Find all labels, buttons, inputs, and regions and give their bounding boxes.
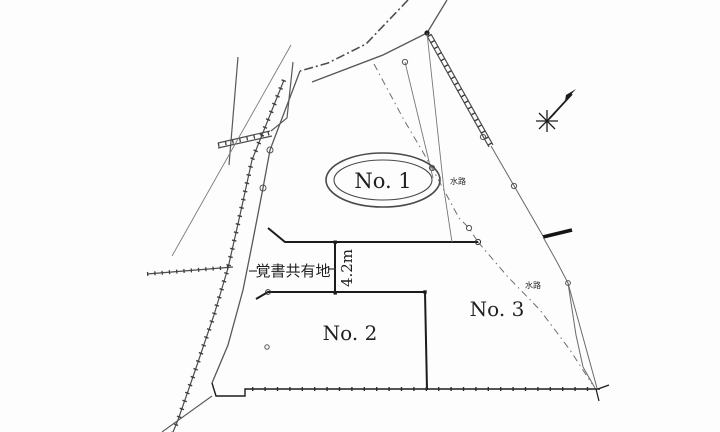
plot-no3-label: No. 3 <box>470 297 525 321</box>
waterway-label-upper: 水路 <box>450 176 466 186</box>
boundary-no2-north <box>256 292 425 299</box>
north-arrow-icon <box>536 89 576 132</box>
upper-left-line-2 <box>271 62 293 131</box>
small-marker-circle <box>265 345 269 349</box>
road-bottom-inner-line <box>162 396 212 432</box>
shared-land-annotation: 覚書共有地 4.2m <box>249 249 356 287</box>
ne-boundary-line-a <box>427 36 489 147</box>
northeast-boundary <box>427 34 572 237</box>
upper-road <box>300 0 447 82</box>
upper-left-line-1 <box>229 57 238 165</box>
main-road <box>162 71 300 432</box>
north-arrow-shaft <box>549 94 572 119</box>
east-boundary-no3 <box>543 237 597 388</box>
waterway-label-lower: 水路 <box>525 280 541 290</box>
plot-no1-label: No. 1 <box>354 169 411 193</box>
parcel-boundaries <box>212 228 609 401</box>
upper-road-north-edge <box>300 0 408 71</box>
strip-width-label: 4.2m <box>338 249 356 287</box>
boundary-southeast-tail <box>596 389 599 401</box>
boundary-node <box>334 291 337 294</box>
survey-line-short <box>405 62 433 178</box>
east-boundary-outer <box>543 237 597 388</box>
east-corner-bold-mark <box>543 230 572 237</box>
boundary-south <box>212 383 600 396</box>
boundary-no2-no3-divider <box>425 292 427 390</box>
boundary-node <box>334 241 337 244</box>
waterway-line <box>374 64 592 384</box>
ne-boundary-line-b <box>431 34 493 145</box>
upper-left-structures <box>147 45 293 274</box>
upper-road-south-edge <box>312 0 447 82</box>
survey-lines <box>402 33 452 242</box>
stub-road-hatching <box>218 133 271 145</box>
main-road-left-edge-hatching <box>173 80 284 432</box>
survey-map-canvas: No. 1 No. 2 No. 3 覚書共有地 4.2m 水路 水路 <box>0 0 720 432</box>
plot-no2-label: No. 2 <box>323 321 378 345</box>
ne-boundary-hatching <box>429 35 491 146</box>
waterway-marker-circle <box>466 225 471 230</box>
ne-boundary-thin-extension <box>491 146 543 236</box>
plot-no1: No. 1 <box>326 153 440 207</box>
shared-land-label: 覚書共有地 <box>255 262 330 280</box>
boundary-node <box>423 290 426 293</box>
survey-map-sheet: No. 1 No. 2 No. 3 覚書共有地 4.2m 水路 水路 <box>0 0 720 432</box>
boundary-no1-south <box>268 228 478 242</box>
boundary-southeast-hook <box>598 385 609 389</box>
